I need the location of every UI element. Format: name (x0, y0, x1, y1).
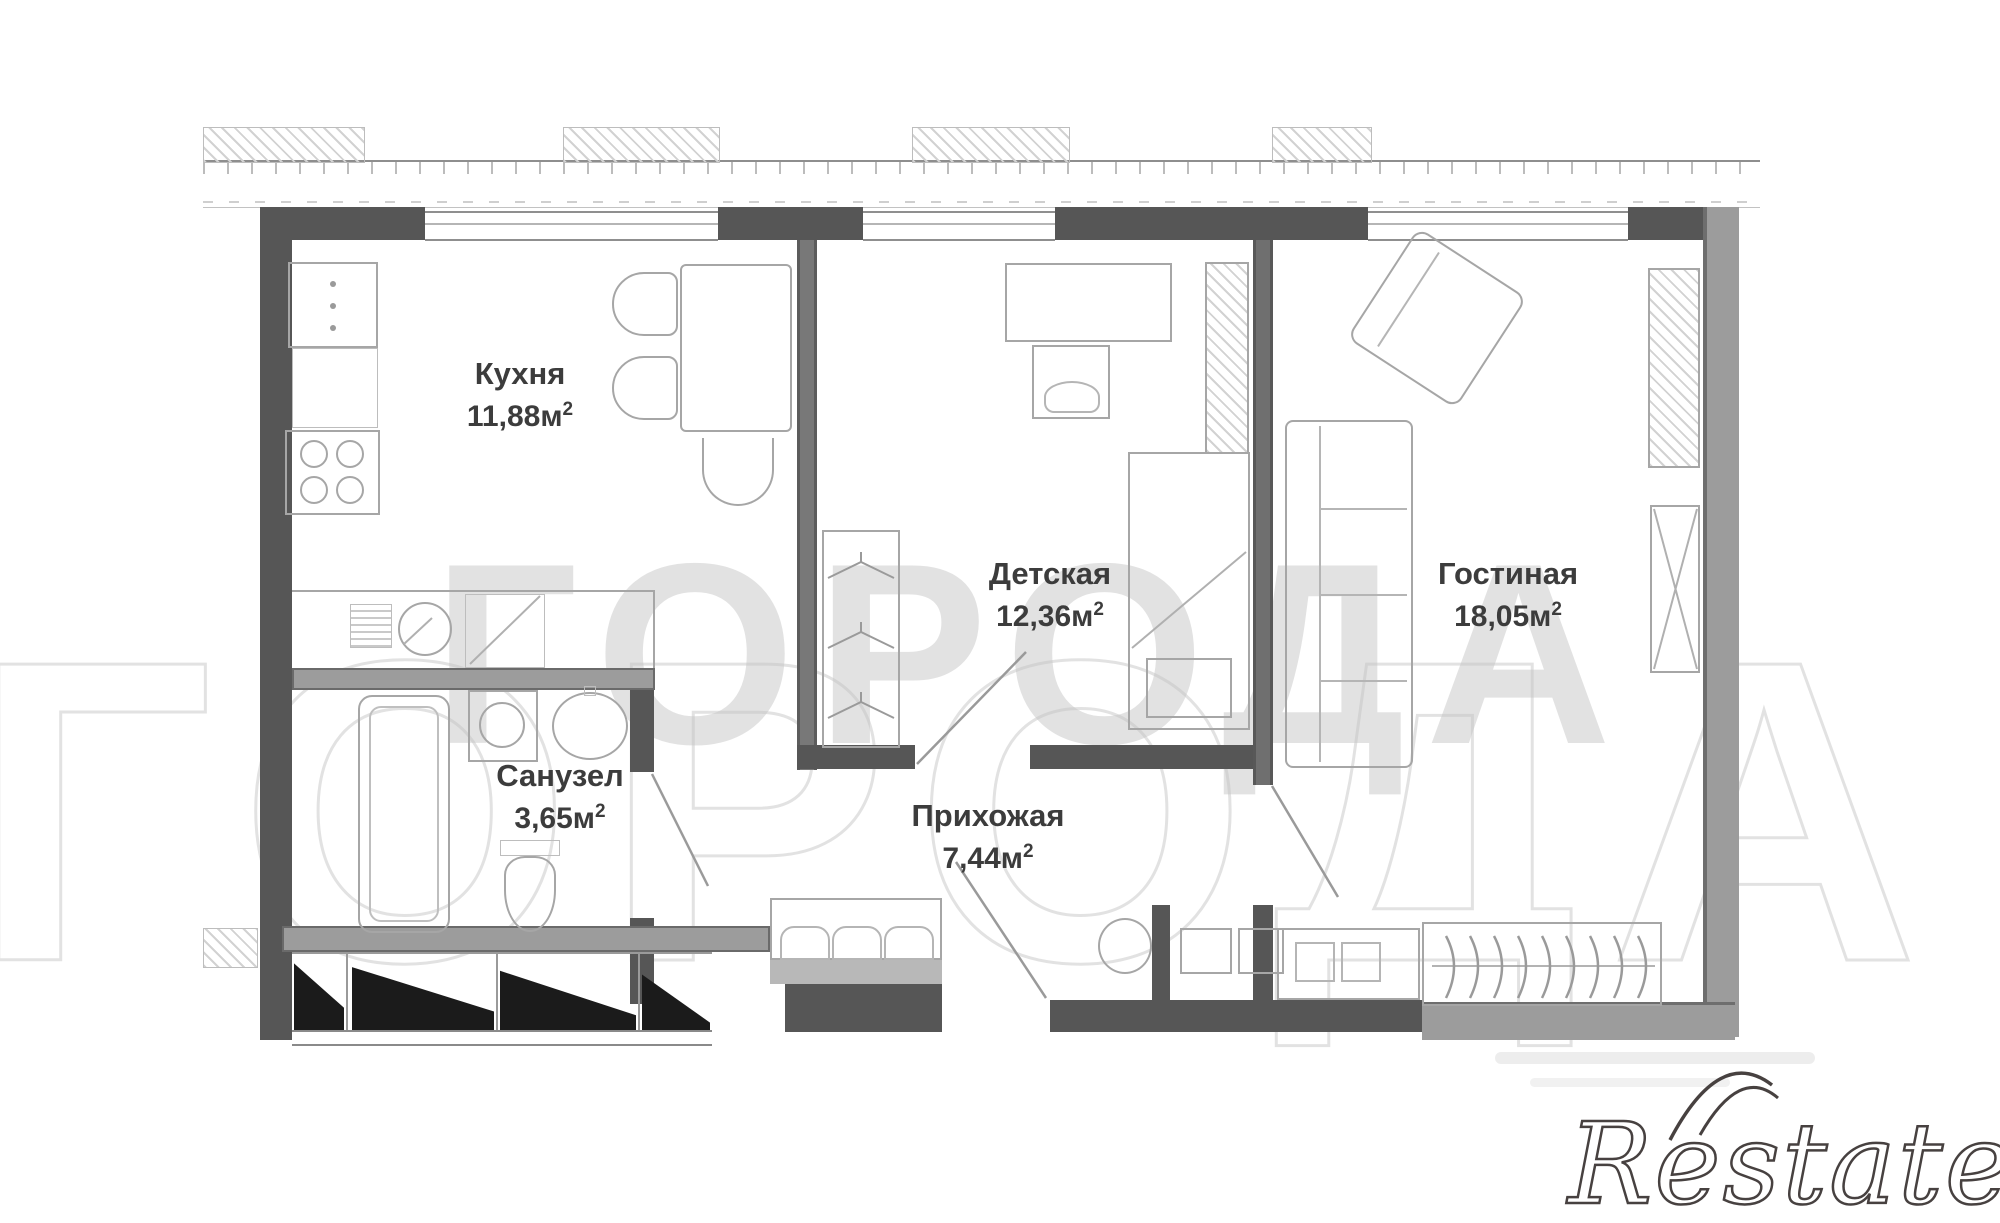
hanger-icon (1542, 936, 1550, 998)
room-label-kids: Детская 12,36м2 (989, 556, 1111, 635)
hanger-icon (1566, 936, 1574, 998)
hanger-icons (1432, 936, 1655, 998)
counter-board-diagonal (470, 596, 540, 664)
room-label-living: Гостиная 18,05м2 (1438, 556, 1578, 635)
floor-plan-canvas: ГОРОДА ГОРОДА (0, 0, 2000, 1223)
cabinet-cross-lines (1654, 509, 1697, 669)
room-label-bathroom: Санузел 3,65м2 (496, 758, 624, 837)
room-area: 11,88м2 (467, 392, 573, 435)
room-label-hall: Прихожая 7,44м2 (912, 798, 1065, 877)
wardrobe-hanger-icons (828, 552, 894, 718)
hanger-icon (828, 552, 894, 578)
hanger-icon (1446, 936, 1454, 998)
hanger-icon (1470, 936, 1478, 998)
hanger-icon (828, 622, 894, 648)
room-name: Санузел (496, 758, 624, 794)
hanger-icon (828, 692, 894, 718)
hanger-icon (1638, 936, 1646, 998)
bathroom-door-line (652, 774, 708, 886)
hanger-icon (1614, 936, 1622, 998)
room-area: 7,44м2 (912, 834, 1065, 877)
brand-watermark-text: Restate (1568, 1100, 2000, 1223)
hanger-icon (1518, 936, 1526, 998)
room-name: Кухня (467, 356, 573, 392)
hanger-icon (1590, 936, 1598, 998)
room-label-kitchen: Кухня 11,88м2 (467, 356, 573, 435)
kitchen-faucet-line (404, 618, 432, 644)
room-area: 3,65м2 (496, 794, 624, 837)
room-area: 18,05м2 (1438, 592, 1578, 635)
room-name: Прихожая (912, 798, 1065, 834)
livingroom-door-line (1272, 786, 1338, 897)
entrance-door-line (956, 862, 1046, 998)
room-name: Гостиная (1438, 556, 1578, 592)
room-area: 12,36м2 (989, 592, 1111, 635)
room-name: Детская (989, 556, 1111, 592)
bed-blanket-fold-line (1132, 552, 1246, 648)
hanger-icon (1494, 936, 1502, 998)
kidsroom-door-line (917, 652, 1026, 764)
